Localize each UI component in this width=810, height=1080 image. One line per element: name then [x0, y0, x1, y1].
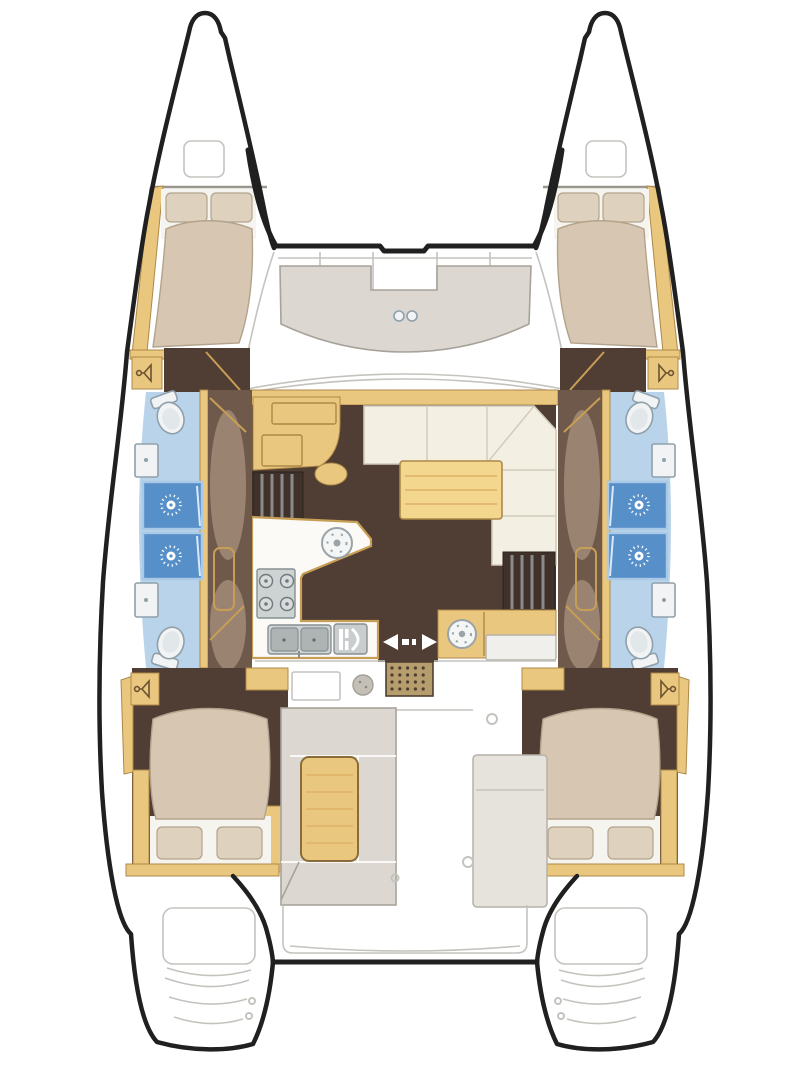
- stern-step: [174, 1017, 243, 1024]
- cup-holder-icon: [394, 311, 404, 321]
- hinge-ring-icon: [487, 714, 497, 724]
- shower-dot: [169, 554, 172, 557]
- aft-bench-line: [290, 946, 520, 951]
- stove-icon: [257, 569, 295, 618]
- wardrobe-forward: [648, 357, 678, 389]
- round-sink-icon: [322, 528, 352, 558]
- pillow: [608, 827, 653, 859]
- cabin-trim: [133, 770, 149, 872]
- cleat-icon: [249, 998, 255, 1004]
- nav-station-desk: [253, 397, 340, 470]
- shower-dot: [637, 554, 640, 557]
- port-hull-inner-stern: [233, 876, 273, 962]
- cockpit: [255, 661, 556, 953]
- drain-dot: [359, 681, 362, 684]
- pillow: [603, 193, 644, 222]
- forward-cabin-bed: [558, 221, 657, 347]
- arrow-dash: [412, 639, 416, 645]
- aft-bench-outline: [283, 905, 527, 953]
- burner-center: [285, 579, 289, 583]
- stern-step: [561, 978, 645, 987]
- cabin-shelf: [522, 668, 564, 690]
- appliance-bar: [345, 641, 349, 650]
- shower-dot: [637, 503, 640, 506]
- arrow-dash: [402, 639, 409, 645]
- hinge-ring-icon: [463, 857, 473, 867]
- burner-center: [264, 579, 268, 583]
- pillow: [211, 193, 252, 222]
- salon: [246, 390, 558, 696]
- deck-drain-icon: [353, 675, 373, 695]
- floor-plan-page: [0, 0, 810, 1080]
- stern-step: [169, 997, 247, 1004]
- sink-drain: [459, 631, 465, 637]
- pillow: [166, 193, 207, 222]
- nav-seat: [315, 463, 347, 485]
- basin-drain: [662, 458, 666, 462]
- cup-holder-icon: [407, 311, 417, 321]
- cabin-shelf: [246, 668, 288, 690]
- pillow: [548, 827, 593, 859]
- stern-step: [563, 997, 641, 1004]
- wardrobe-forward: [132, 357, 162, 389]
- stern-step: [165, 978, 249, 987]
- stern-step: [559, 968, 643, 976]
- aft-cabin-bed: [150, 709, 270, 820]
- coachroof-front-line: [237, 374, 573, 391]
- sink-drain: [312, 638, 315, 641]
- wardrobe-aft: [131, 673, 159, 705]
- cabin-trim: [531, 864, 684, 876]
- burner-center: [264, 602, 268, 606]
- catamaran-floor-plan: [0, 0, 810, 1080]
- round-sink-icon: [448, 620, 476, 648]
- sink-drain: [334, 540, 341, 547]
- drain-dot: [365, 686, 368, 689]
- forward-crossbeam: [248, 150, 562, 251]
- shower-dot: [169, 503, 172, 506]
- basin-drain: [144, 458, 148, 462]
- cabin-trim: [661, 770, 677, 872]
- swim-platform: [163, 908, 255, 964]
- entry-bulkhead: [378, 610, 438, 662]
- corridor-highlight: [210, 580, 246, 670]
- corridor-highlight: [210, 410, 246, 560]
- aft-cabin-bed: [540, 709, 660, 820]
- appliance-icon: [334, 624, 367, 654]
- basin-drain: [144, 598, 148, 602]
- appliance-bar: [345, 629, 349, 638]
- deck-hatch: [586, 141, 626, 177]
- appliance-bar: [339, 629, 343, 650]
- pillow: [157, 827, 202, 859]
- foredeck: [237, 252, 573, 393]
- wet-bar-module: [486, 635, 556, 660]
- forward-cabin-bed: [153, 221, 252, 347]
- basin-drain: [662, 598, 666, 602]
- bow-seat: [280, 266, 531, 352]
- wardrobe-aft: [651, 673, 679, 705]
- pillow: [558, 193, 599, 222]
- starboard-module: [473, 755, 547, 907]
- cleat-icon: [555, 998, 561, 1004]
- corridor-highlight: [564, 410, 600, 560]
- deck-hatch: [184, 141, 224, 177]
- stern-step: [567, 1017, 636, 1024]
- pillow: [217, 827, 262, 859]
- sink-drain: [282, 638, 285, 641]
- double-sink-icon: [268, 625, 331, 658]
- cleat-icon: [246, 1013, 252, 1019]
- cleat-icon: [558, 1013, 564, 1019]
- stern-step: [167, 968, 251, 976]
- cockpit-hatch: [292, 672, 340, 700]
- appliance-body: [334, 624, 367, 654]
- corridor-highlight: [564, 580, 600, 670]
- cabin-trim: [126, 864, 279, 876]
- swim-platform: [555, 908, 647, 964]
- burner-center: [285, 602, 289, 606]
